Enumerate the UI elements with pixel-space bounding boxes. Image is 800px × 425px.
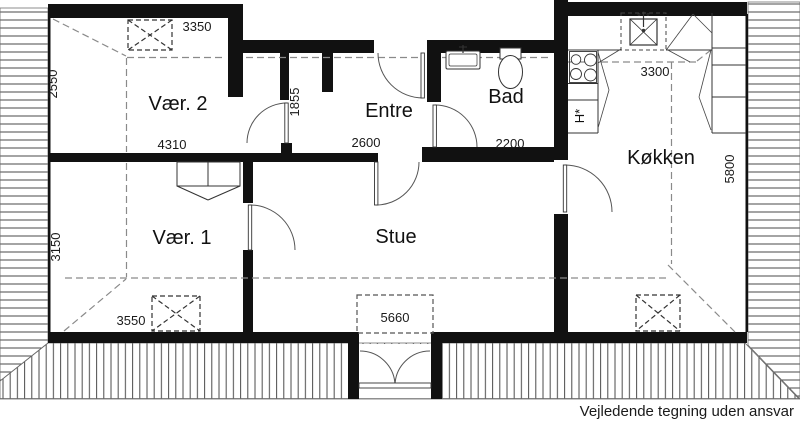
room-label-vaer1: Vær. 1	[153, 227, 212, 249]
wall-balcony-jamb-left	[348, 332, 359, 399]
room-label-bad: Bad	[488, 86, 524, 108]
dim-entre-left: 1855	[287, 88, 302, 117]
toilet-icon	[499, 48, 523, 89]
door-koekken	[563, 165, 612, 212]
room-label-vaer2: Vær. 2	[149, 93, 208, 115]
floor-plan: H*	[0, 0, 800, 425]
dim-vaer2-left: 2550	[45, 70, 60, 99]
wardrobe-icon	[177, 162, 240, 200]
wall-bottom-left	[48, 332, 358, 343]
skylight-icon	[128, 20, 172, 50]
dim-bad-bottom: 2200	[496, 136, 525, 151]
ceiling-height-dashed-lines	[53, 19, 735, 332]
kitchen-sink-icon	[621, 12, 666, 50]
wall-vaer2-door-stub	[281, 143, 292, 155]
door-vaer1	[248, 205, 295, 250]
wall-balcony-jamb-right	[431, 332, 442, 399]
dimension-labels: 3350 2550 4310 1855 2600 2200 3300 5800 …	[45, 19, 737, 328]
room-label-entre: Entre	[365, 100, 413, 122]
wall-kitchen-left-lower	[554, 214, 568, 334]
wall-bottom-right	[432, 332, 747, 343]
door-stue	[375, 162, 420, 205]
dim-vaer2-bottom: 4310	[158, 137, 187, 152]
wall-stair-left	[228, 4, 243, 97]
fridge-icon: H*	[572, 109, 587, 123]
footer-disclaimer: Vejledende tegning uden ansvar	[580, 403, 794, 420]
wall-exterior-left	[48, 18, 51, 332]
wall-top-right	[554, 2, 747, 16]
wall-mid-horizontal-right	[422, 147, 554, 162]
dim-stue-bottom: 5660	[381, 310, 410, 325]
room-label-koekken: Køkken	[627, 147, 695, 169]
dim-koekken-right: 5800	[722, 155, 737, 184]
door-vaer2	[247, 103, 288, 143]
wall-kitchen-left-upper	[554, 0, 568, 160]
door-bad	[433, 105, 477, 147]
door-entre-top	[378, 53, 424, 98]
wall-vaer1-stue-upper	[243, 162, 253, 203]
door-sill	[359, 383, 431, 388]
stove-icon	[570, 52, 597, 83]
dim-koekken-top: 3300	[641, 64, 670, 79]
wall-vaer1-stue-lower	[243, 250, 253, 332]
floor-plan-page: H*	[0, 0, 800, 425]
wall-top-left	[48, 4, 243, 18]
room-label-stue: Stue	[375, 226, 416, 248]
skylight-icon	[152, 296, 200, 331]
wall-entre-top	[243, 40, 374, 53]
skylight-icon	[636, 295, 680, 331]
dim-vaer1-bottom: 3550	[117, 313, 146, 328]
fridge-label: H*	[572, 109, 587, 123]
wall-mid-horizontal-left	[48, 153, 378, 162]
dim-vaer1-left: 3150	[48, 233, 63, 262]
roof-hatch-bottom	[0, 343, 799, 399]
roof-hatch-left	[0, 8, 48, 381]
wall-exterior-right	[746, 14, 749, 332]
roof-hatch-right	[748, 2, 800, 399]
dim-entre-bottom: 2600	[352, 135, 381, 150]
wall-stair-stub-b	[322, 53, 333, 92]
dim-vaer2-top: 3350	[183, 19, 212, 34]
